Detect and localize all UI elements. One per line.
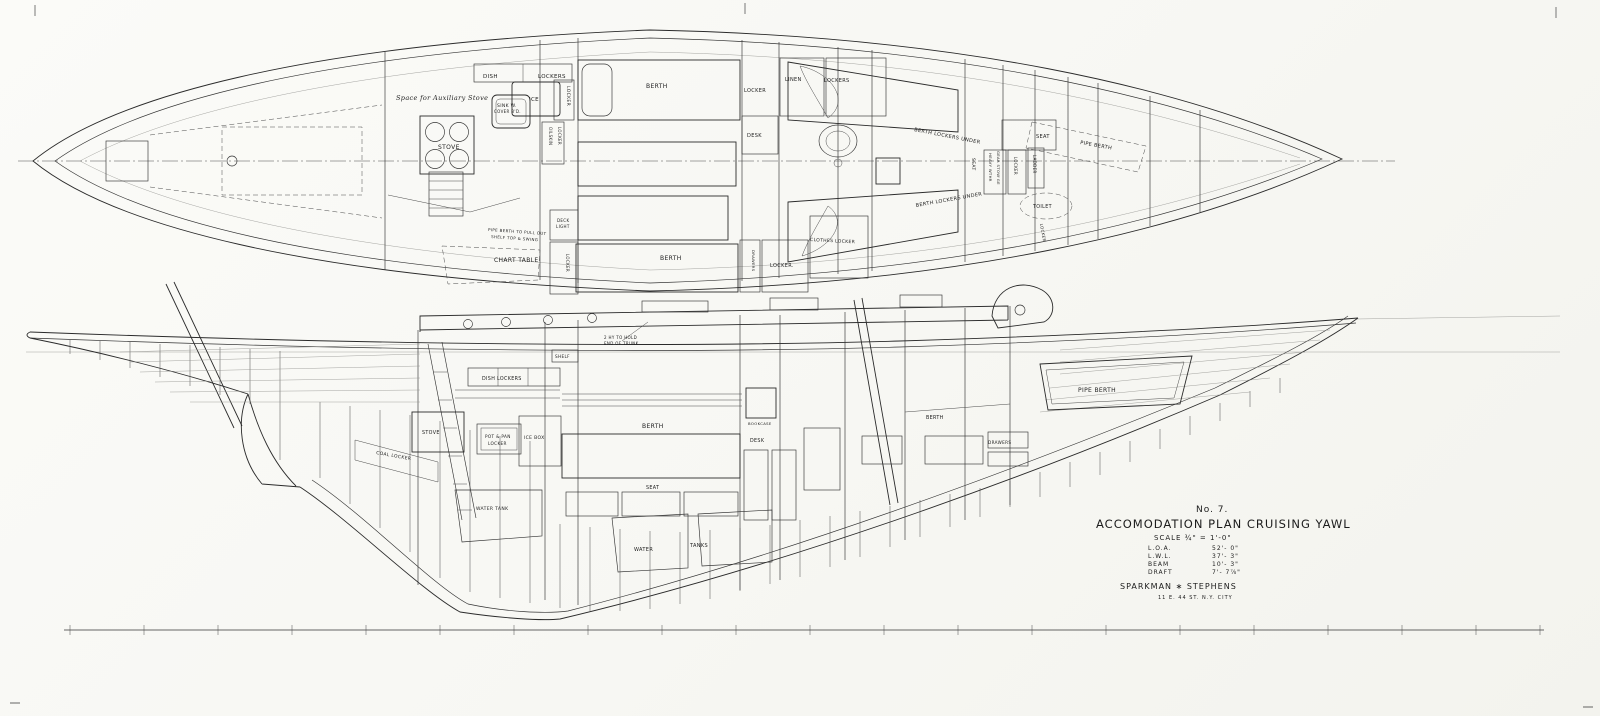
- profile-sheer-line: [30, 318, 1358, 344]
- plan-lockers-box: [826, 58, 886, 116]
- plan-label-ice: ICE: [529, 97, 539, 103]
- profile-label-drawers: DRAWERS: [988, 440, 1011, 445]
- plan-label-berth-stbd: BERTH: [646, 83, 668, 90]
- drawing-canvas: DISH LOCKERS Space for Auxiliary Stove S…: [0, 0, 1600, 716]
- plan-blanket-fold: [800, 66, 838, 118]
- plan-counter-edge: [388, 195, 520, 212]
- plan-label-locker-aft: LOCKER: [744, 88, 766, 94]
- plan-label-desk: DESK: [747, 133, 762, 139]
- profile-label-seat: SEAT: [646, 485, 659, 491]
- profile-berth-shelf-lines: [562, 394, 742, 406]
- profile-cabin-trunk: [420, 306, 1008, 332]
- plan-label-pipe-berth: PIPE BERTH: [1080, 140, 1113, 152]
- profile-view: [26, 282, 1560, 635]
- plan-label-gear-stowage: GEAR STOW'GE: [996, 151, 1001, 185]
- trim-tick: [10, 3, 1593, 707]
- plan-label-berth-port: BERTH: [660, 255, 682, 262]
- profile-label-icebox: ICE BOX: [524, 435, 545, 441]
- plan-label-berth-lockers-under-stbd: BERTH LOCKERS UNDER: [914, 127, 981, 146]
- plan-ladder-rungs: [429, 181, 463, 208]
- profile-porthole: [502, 318, 511, 327]
- profile-ceiling-fwd: [1040, 330, 1330, 412]
- profile-label-shelf: SHELF: [555, 354, 570, 359]
- plan-deck-inner-line: [55, 38, 1322, 283]
- profile-label-potpan: POT & PAN: [485, 434, 511, 439]
- spec-label-beam: BEAM: [1148, 561, 1169, 568]
- profile-rudder: [241, 394, 300, 487]
- plan-label-locker-aft2: LOCKER.: [770, 263, 794, 269]
- plan-label-heavy-wthr: HEAVY WTHR: [988, 153, 993, 182]
- profile-waterline: [26, 316, 1560, 352]
- profile-porthole: [588, 314, 597, 323]
- profile-counter: [27, 332, 248, 394]
- profile-label-bookcase: BOOKCASE: [748, 421, 772, 426]
- plan-label-locker-v: LOCKER: [565, 86, 571, 106]
- plan-label-aux-stove-note: Space for Auxiliary Stove: [396, 94, 488, 102]
- profile-label-trunk-note1: 2 HY TO HOLD: [604, 335, 637, 340]
- plan-view: [18, 30, 1395, 294]
- profile-keel-line: [300, 318, 1358, 620]
- plan-label-linen: LINEN: [785, 77, 802, 83]
- spec-label-lwl: L.W.L.: [1148, 553, 1172, 560]
- plan-labels: DISH LOCKERS Space for Auxiliary Stove S…: [396, 74, 1112, 272]
- profile-desk-door: [744, 450, 768, 520]
- profile-bulkheads: [418, 306, 1010, 605]
- plan-berth-stbd: [578, 60, 740, 120]
- plan-label-dish: DISH: [483, 74, 498, 80]
- firm-address: 11 E. 44 ST. N.Y. CITY: [1158, 595, 1233, 601]
- profile-icebox: [519, 416, 561, 466]
- profile-transom-cushion: [562, 434, 740, 478]
- plan-stateroom-berth-stbd: [788, 62, 958, 132]
- plan-stove-burner: [450, 150, 469, 169]
- plan-label-berth-lockers-under-port: BERTH LOCKERS UNDER: [915, 191, 983, 209]
- plan-label-lockers: LOCKERS: [538, 74, 566, 80]
- plan-clothes-locker: [810, 216, 868, 278]
- plan-mast-partner: [876, 158, 900, 184]
- profile-galley-water-tank: [455, 490, 542, 542]
- profile-label-dish-lockers: DISH LOCKERS: [482, 376, 522, 382]
- profile-label-stove: STOVE: [422, 430, 440, 436]
- profile-label-coal-locker: COAL LOCKER: [376, 450, 412, 462]
- profile-ceiling-aft: [120, 344, 420, 402]
- profile-label-desk: DESK: [750, 438, 765, 444]
- plan-label-locker-bow: LOCKER: [1039, 223, 1047, 242]
- profile-potpan-locker: [477, 424, 521, 454]
- profile-grille: [746, 388, 776, 418]
- plan-label-light: LIGHT: [556, 224, 570, 229]
- firm-name: SPARKMAN ∗ STEPHENS: [1120, 582, 1237, 591]
- spec-value-loa: 52'- 0": [1212, 545, 1239, 552]
- profile-label-berth-aft: BERTH: [926, 415, 944, 421]
- profile-label-trunk-note2: END OF TRUNK.: [604, 341, 640, 346]
- plan-label-sink-cover: COVER B'D.: [494, 109, 521, 114]
- plan-label-stove: STOVE: [438, 144, 460, 151]
- plan-transom-port: [578, 196, 728, 240]
- plan-label-chart-table: CHART TABLE: [494, 257, 539, 264]
- plan-label-locker-chart: LOCKER: [565, 254, 570, 272]
- profile-desk-door: [772, 450, 796, 520]
- profile-seat-panel: [566, 492, 618, 516]
- profile-berth-edge: [905, 404, 1010, 412]
- profile-skylight: [642, 301, 708, 312]
- plan-label-seat: SEAT: [1036, 134, 1050, 140]
- profile-bow-port: [1015, 305, 1025, 315]
- title-block: No. 7. ACCOMODATION PLAN CRUISING YAWL S…: [1096, 505, 1351, 601]
- profile-label-tanks: TANKS: [689, 543, 708, 549]
- plan-label-lockers2: LOCKERS: [824, 78, 850, 84]
- profile-coal-locker: [355, 440, 438, 482]
- plan-hull-outline: [33, 30, 1342, 291]
- plan-label-drawers: DRAWERS: [751, 250, 756, 272]
- spec-label-loa: L.O.A.: [1148, 545, 1172, 552]
- profile-stern-frames: [70, 340, 280, 460]
- profile-label-berth: BERTH: [642, 423, 664, 430]
- plan-label-ladder: LADDER: [1032, 155, 1037, 174]
- plan-label-pipe-berth-note2: SHELF TOP & SWING: [491, 234, 538, 242]
- plan-stove-burner: [426, 150, 445, 169]
- profile-label-pipe-berth: PIPE BERTH: [1078, 387, 1116, 394]
- profile-label-potpan-locker: LOCKER: [488, 441, 507, 446]
- profile-tank2: [698, 510, 772, 566]
- plan-blanket-fold: [802, 206, 837, 256]
- profile-keel-inner-line: [312, 316, 1348, 612]
- profile-covering-board: [30, 323, 1356, 350]
- plan-stove-burner: [450, 123, 469, 142]
- profile-ladder-rungs: [433, 372, 472, 510]
- profile-potpan-inner: [481, 428, 517, 450]
- plan-label-locker-fwd: LOCKER: [1013, 157, 1018, 175]
- plan-stove-burner: [426, 123, 445, 142]
- drawing-number: No. 7.: [1196, 505, 1228, 515]
- profile-main-mast: [854, 298, 898, 505]
- spec-value-beam: 10'- 3": [1212, 561, 1239, 568]
- blueprint-sheet: DISH LOCKERS Space for Auxiliary Stove S…: [0, 0, 1600, 716]
- profile-fwd-hatch: [900, 295, 942, 307]
- sheet-trim-marks: [10, 3, 1593, 707]
- plan-label-toilet: TOILET: [1032, 204, 1052, 210]
- profile-mizzen-mast: [166, 282, 242, 428]
- drawing-scale: SCALE ¾" = 1'-0": [1154, 534, 1232, 542]
- profile-panel: [804, 428, 840, 490]
- plan-label-seat-v: SEAT: [970, 158, 976, 171]
- profile-drawer: [988, 452, 1028, 466]
- spec-value-lwl: 37'- 3": [1212, 553, 1239, 560]
- profile-porthole: [464, 320, 473, 329]
- profile-label-water-tank: WATER TANK: [476, 506, 509, 512]
- profile-stateroom-cushion2: [925, 436, 983, 464]
- plan-transom-stbd: [578, 142, 736, 186]
- plan-label-deck: DECK: [557, 218, 569, 223]
- plan-berth-pillow: [582, 64, 612, 116]
- profile-shelf-lines: [455, 368, 560, 398]
- plan-label-oilskin-locker: LOCKER: [557, 127, 562, 145]
- drawing-title: ACCOMODATION PLAN CRUISING YAWL: [1096, 517, 1351, 531]
- plan-locker-col: [554, 80, 574, 120]
- plan-label-oilskin: OILSKIN: [548, 127, 553, 145]
- profile-label-water: WATER: [634, 547, 653, 553]
- profile-seat-panel: [622, 492, 680, 516]
- profile-hatch: [770, 298, 818, 310]
- spec-value-draft: 7'- 7⅞": [1212, 569, 1241, 576]
- spec-label-draft: DRAFT: [1148, 569, 1173, 576]
- plan-folding-berth-lines: [150, 105, 382, 218]
- plan-label-clothes-locker: CLOTHES LOCKER: [810, 237, 855, 245]
